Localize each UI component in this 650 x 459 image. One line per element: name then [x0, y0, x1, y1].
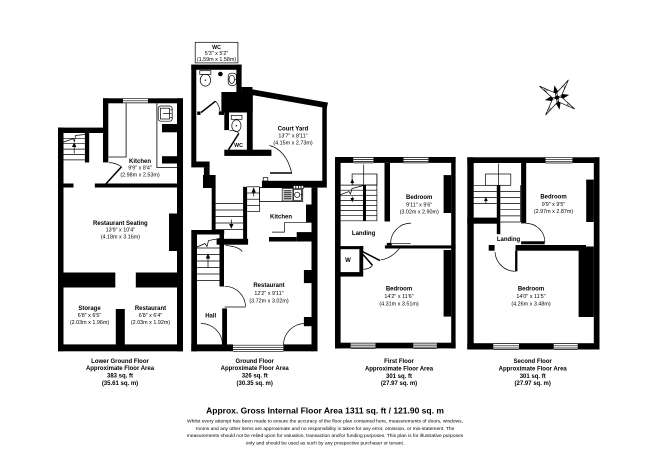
svg-text:326 sq. ft: 326 sq. ft — [242, 374, 268, 380]
svg-text:(4.31m x 3.51m): (4.31m x 3.51m) — [379, 301, 418, 307]
svg-text:Second Floor: Second Floor — [514, 359, 553, 365]
svg-text:Court Yard: Court Yard — [278, 127, 309, 133]
svg-text:Approximate Floor Area: Approximate Floor Area — [365, 366, 434, 372]
svg-text:13'9" x 10'4": 13'9" x 10'4" — [106, 228, 136, 234]
svg-text:301 sq. ft: 301 sq. ft — [520, 374, 546, 380]
svg-text:6'8" x 6'4": 6'8" x 6'4" — [139, 313, 163, 319]
svg-text:Approximate Floor Area: Approximate Floor Area — [221, 366, 290, 372]
svg-text:WC: WC — [212, 45, 221, 51]
svg-text:Bedroom: Bedroom — [406, 195, 432, 201]
svg-text:First Floor: First Floor — [384, 359, 414, 365]
svg-text:(3.02m x 2.90m): (3.02m x 2.90m) — [400, 210, 439, 216]
svg-text:Bedroom: Bedroom — [386, 287, 412, 293]
svg-text:(35.61 sq. m): (35.61 sq. m) — [102, 381, 138, 387]
svg-text:(27.97 sq. m): (27.97 sq. m) — [381, 381, 417, 387]
svg-text:14'0" x 11'5": 14'0" x 11'5" — [516, 294, 545, 300]
svg-text:Restaurant Seating: Restaurant Seating — [93, 221, 148, 227]
svg-text:rooms and any other items are: rooms and any other items are approximat… — [196, 426, 455, 432]
svg-text:(2.03m x 1.96m): (2.03m x 1.96m) — [70, 320, 109, 326]
svg-text:301 sq. ft: 301 sq. ft — [386, 374, 412, 380]
svg-text:Whilst every attempt has been: Whilst every attempt has been made to en… — [187, 419, 463, 425]
svg-text:Bedroom: Bedroom — [518, 287, 544, 293]
svg-text:only and should be used as suc: only and should be used as such by any p… — [246, 440, 405, 446]
svg-text:Lower Ground Floor: Lower Ground Floor — [91, 359, 149, 365]
svg-text:Approx. Gross Internal Floor A: Approx. Gross Internal Floor Area 1311 s… — [206, 406, 444, 416]
svg-text:Bedroom: Bedroom — [540, 195, 566, 201]
svg-text:W: W — [345, 258, 351, 264]
svg-text:(3.72m x 3.02m): (3.72m x 3.02m) — [249, 298, 288, 304]
svg-text:(27.97 sq. m): (27.97 sq. m) — [515, 381, 551, 387]
svg-text:9'11" x 9'6": 9'11" x 9'6" — [406, 202, 432, 208]
svg-text:Kitchen: Kitchen — [129, 159, 151, 165]
svg-text:Approximate Floor Area: Approximate Floor Area — [499, 366, 568, 372]
svg-text:9'9" x 8'4": 9'9" x 8'4" — [128, 166, 152, 172]
svg-text:(30.35 sq. m): (30.35 sq. m) — [237, 381, 273, 387]
svg-text:Restaurant: Restaurant — [135, 306, 166, 312]
svg-text:WC: WC — [234, 143, 243, 149]
svg-text:Kitchen: Kitchen — [270, 215, 292, 221]
svg-text:12'2" x 9'11": 12'2" x 9'11" — [254, 291, 283, 297]
svg-text:(2.98m x 2.53m): (2.98m x 2.53m) — [120, 173, 159, 179]
svg-text:383 sq. ft: 383 sq. ft — [107, 374, 133, 380]
svg-text:(2.03m x 1.92m): (2.03m x 1.92m) — [131, 320, 170, 326]
svg-text:Approximate Floor Area: Approximate Floor Area — [86, 366, 155, 372]
svg-text:9'9" x 9'5": 9'9" x 9'5" — [542, 202, 566, 208]
svg-text:14'2" x 11'6": 14'2" x 11'6" — [384, 294, 413, 300]
svg-text:measurements should not be rel: measurements should not be relied upon f… — [187, 433, 464, 439]
svg-text:6'8" x 6'5": 6'8" x 6'5" — [78, 313, 102, 319]
svg-text:(4.18m x 3.16m): (4.18m x 3.16m) — [101, 235, 140, 241]
svg-text:Restaurant: Restaurant — [253, 283, 284, 289]
svg-text:Landing: Landing — [497, 237, 521, 243]
svg-text:13'7" x 8'11": 13'7" x 8'11" — [278, 134, 307, 140]
svg-text:(1.59m x 1.58m): (1.59m x 1.58m) — [197, 57, 236, 63]
svg-text:Hall: Hall — [205, 314, 216, 320]
svg-text:Ground Floor: Ground Floor — [236, 359, 275, 365]
svg-text:(4.15m x 2.73m): (4.15m x 2.73m) — [273, 141, 312, 147]
svg-text:Storage: Storage — [78, 306, 101, 312]
svg-text:(2.97m x 2.87m): (2.97m x 2.87m) — [534, 209, 573, 215]
svg-text:Landing: Landing — [352, 231, 376, 237]
svg-text:(4.26m x 3.48m): (4.26m x 3.48m) — [511, 301, 550, 307]
